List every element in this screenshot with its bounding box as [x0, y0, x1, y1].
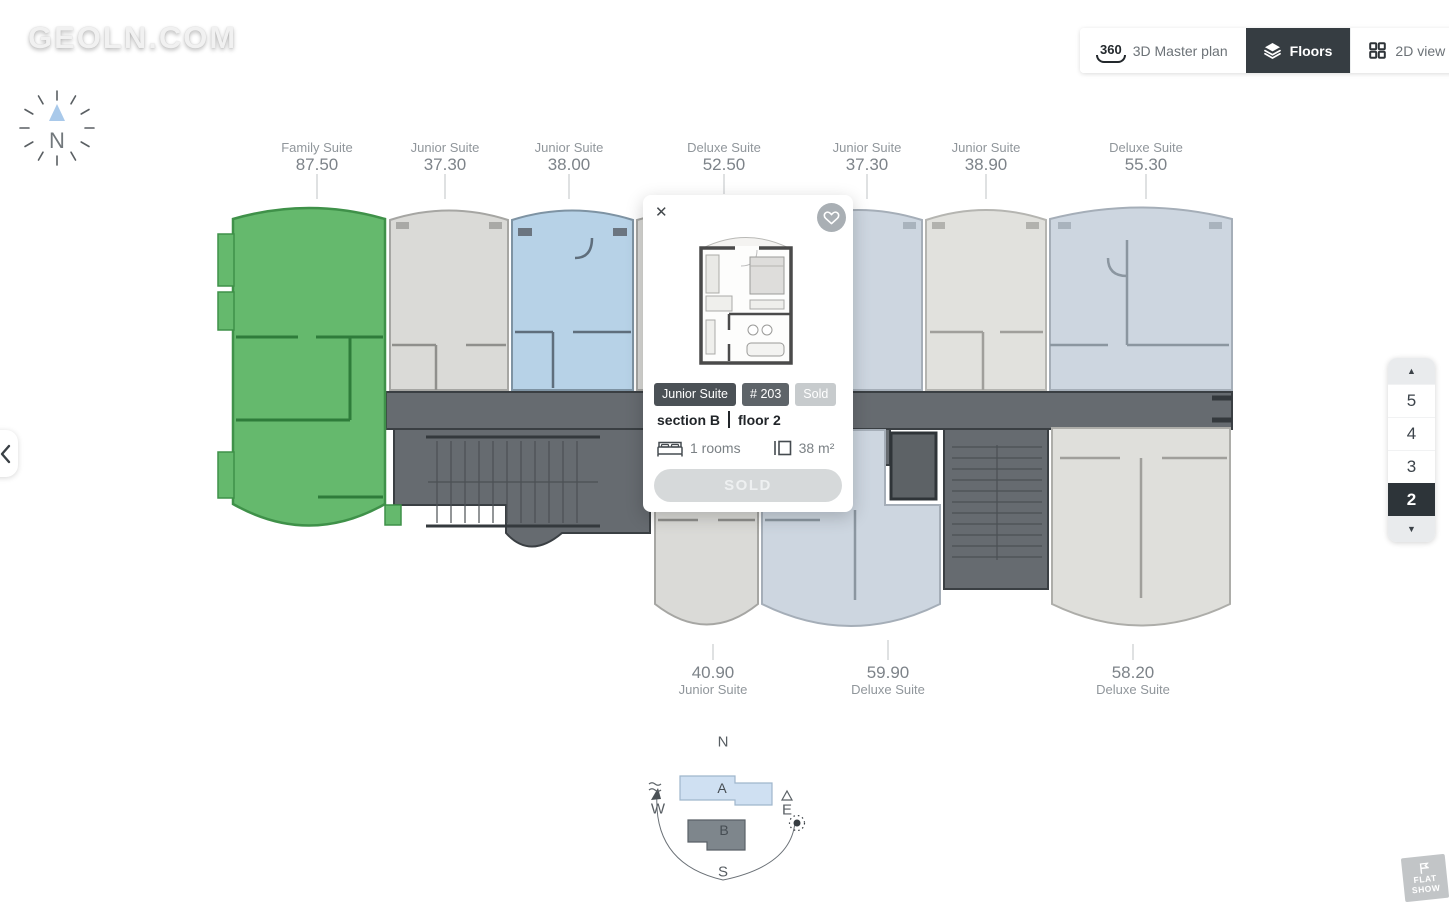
collapse-panel-button[interactable] — [0, 430, 18, 477]
favorite-button[interactable] — [817, 203, 846, 232]
sea-waves-icon — [649, 783, 661, 792]
3d-master-plan-button[interactable]: 360 3D Master plan — [1080, 28, 1246, 73]
unit-family-suite-8750[interactable] — [218, 208, 401, 526]
elevator-shaft — [891, 433, 936, 499]
view-mode-toolbar: 360 3D Master plan Floors 2D view — [1080, 28, 1449, 73]
unit-label: Family Suite87.50 — [281, 140, 353, 174]
badge-row: Junior Suite # 203 Sold — [654, 383, 836, 406]
minimap-east-label: E — [782, 802, 792, 819]
unit-detail-popup: ✕ Junior Suite # 203 Sold — [643, 195, 853, 512]
chevron-left-icon — [0, 444, 12, 464]
divider — [728, 411, 730, 428]
360-icon: 360 — [1098, 42, 1124, 60]
minimap-section-b[interactable] — [688, 820, 745, 850]
floor-selector: ▲ 5 4 3 2 ▼ — [1388, 358, 1435, 542]
flatshow-watermark: FLAT SHOW — [1401, 854, 1449, 902]
area-value: 38 m² — [799, 440, 835, 456]
unit-deluxe-suite-5530[interactable] — [1050, 208, 1232, 391]
2d-view-button[interactable]: 2D view — [1350, 28, 1449, 73]
floor-item-2-selected[interactable]: 2 — [1388, 483, 1435, 516]
section-label: section B — [657, 412, 720, 428]
minimap-west-label: W — [651, 801, 665, 818]
minimap-section-b-label: B — [719, 822, 728, 838]
floor-item-5[interactable]: 5 — [1388, 384, 1435, 417]
unit-junior-suite-3890[interactable] — [926, 210, 1046, 390]
flag-icon — [1419, 862, 1429, 874]
floor-item-4[interactable]: 4 — [1388, 417, 1435, 450]
unit-number-badge: # 203 — [742, 383, 789, 406]
unit-type-badge: Junior Suite — [654, 383, 736, 406]
compass-north-label: N — [49, 128, 65, 153]
floor-item-3[interactable]: 3 — [1388, 450, 1435, 483]
floor-up-button[interactable]: ▲ — [1388, 358, 1435, 384]
unit-label: Deluxe Suite52.50 — [687, 140, 761, 174]
unit-status-badge: Sold — [795, 383, 836, 406]
heart-icon — [823, 210, 840, 225]
minimap-south-label: S — [718, 864, 728, 881]
floor-label: floor 2 — [738, 412, 781, 428]
floors-button[interactable]: Floors — [1246, 28, 1351, 73]
unit-label: Deluxe Suite55.30 — [1109, 140, 1183, 174]
arc-arrow-icon — [651, 788, 661, 800]
mountain-icon — [782, 791, 792, 800]
compass: N — [19, 90, 95, 166]
unit-label: Junior Suite37.30 — [411, 140, 480, 174]
floor-down-button[interactable]: ▼ — [1388, 516, 1435, 542]
unit-floorplan-thumbnail — [695, 224, 797, 369]
unit-label: 40.90Junior Suite — [679, 663, 748, 697]
unit-label: 58.20Deluxe Suite — [1096, 663, 1170, 697]
feature-row: 1 rooms 38 m² — [657, 439, 839, 457]
minimap-section-a-label: A — [717, 780, 726, 796]
grid-icon — [1369, 42, 1386, 59]
compass-north-arrow-icon — [49, 104, 65, 121]
unit-deluxe-suite-5820[interactable] — [1052, 428, 1230, 626]
minimap-north-label: N — [718, 734, 729, 751]
unit-label: Junior Suite38.90 — [952, 140, 1021, 174]
floorplan-viewer: GEOLN.COM 360 3D Master plan Floors 2D v… — [0, 0, 1449, 903]
unit-label: Junior Suite38.00 — [535, 140, 604, 174]
2d-view-label: 2D view — [1395, 43, 1445, 59]
close-icon[interactable]: ✕ — [651, 201, 672, 224]
section-floor-line: section B floor 2 — [657, 411, 781, 428]
sold-action-button[interactable]: SOLD — [654, 469, 842, 502]
area-icon — [773, 439, 792, 457]
sun-icon — [794, 820, 801, 827]
unit-label: Junior Suite37.30 — [833, 140, 902, 174]
unit-junior-suite-3800-selected[interactable] — [512, 211, 633, 391]
unit-label: 59.90Deluxe Suite — [851, 663, 925, 697]
3d-master-plan-label: 3D Master plan — [1133, 43, 1228, 59]
unit-junior-suite-3730-left[interactable] — [390, 211, 508, 391]
bed-icon — [657, 440, 683, 457]
floors-label: Floors — [1290, 43, 1333, 59]
layers-icon — [1264, 42, 1281, 59]
rooms-value: 1 rooms — [690, 440, 741, 456]
